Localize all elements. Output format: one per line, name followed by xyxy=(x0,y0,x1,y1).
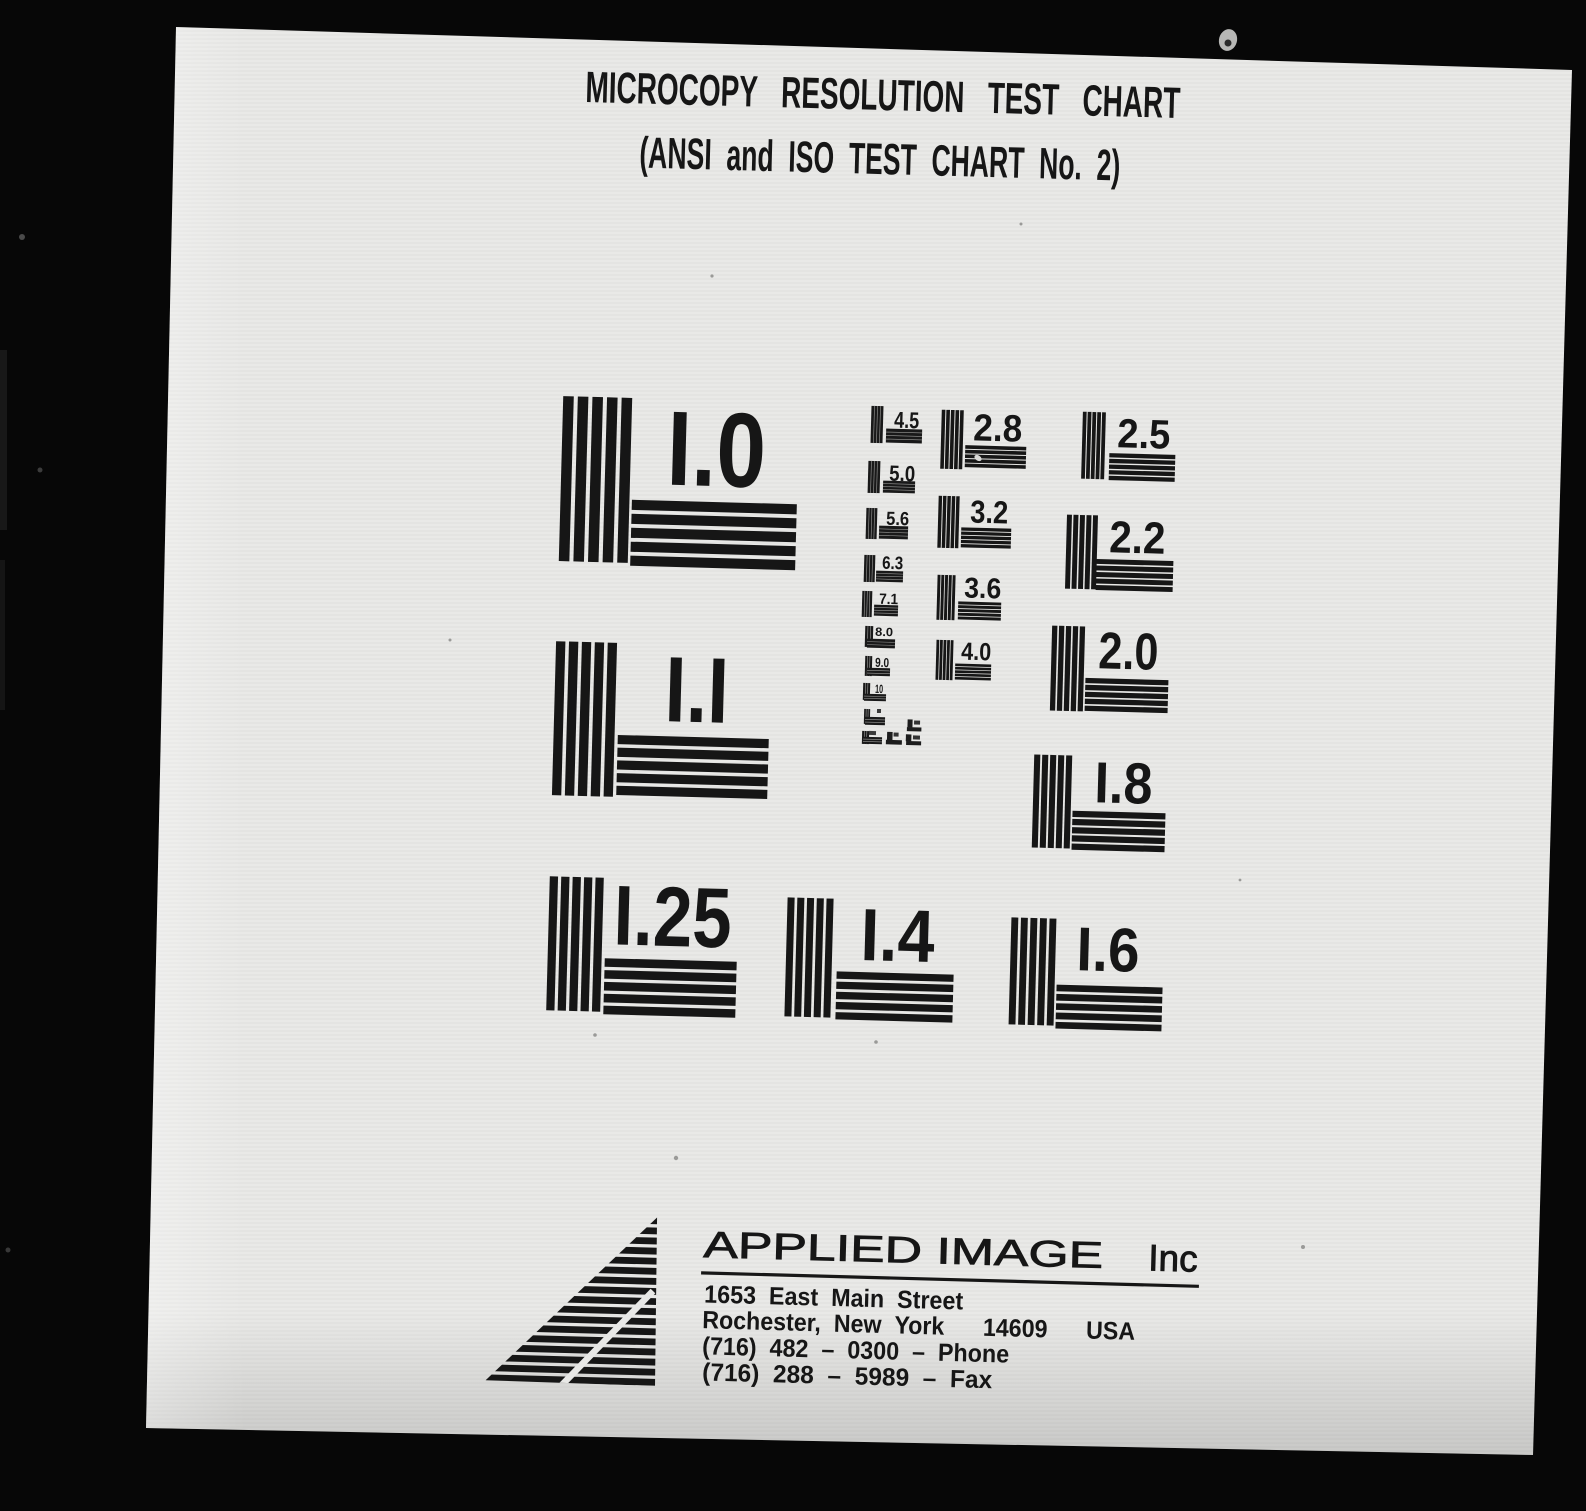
svg-text:3.6: 3.6 xyxy=(964,573,1002,606)
svg-text:I.I: I.I xyxy=(663,637,730,743)
svg-text:5.6: 5.6 xyxy=(886,509,910,531)
svg-text:2.8: 2.8 xyxy=(973,407,1023,450)
svg-text:6.3: 6.3 xyxy=(882,553,904,574)
svg-text:10: 10 xyxy=(875,682,884,696)
svg-text:2.0: 2.0 xyxy=(1098,622,1160,682)
svg-text:I.8: I.8 xyxy=(1094,750,1154,817)
svg-text:I.0: I.0 xyxy=(665,390,767,511)
svg-text:7.1: 7.1 xyxy=(879,591,898,609)
svg-text:9.0: 9.0 xyxy=(875,655,889,670)
svg-text:I.25: I.25 xyxy=(613,868,734,966)
svg-text:I.6: I.6 xyxy=(1076,915,1141,986)
svg-text:4.0: 4.0 xyxy=(961,638,992,667)
svg-text:Inc: Inc xyxy=(1148,1237,1198,1279)
svg-text:8.0: 8.0 xyxy=(875,625,894,639)
svg-text:2.2: 2.2 xyxy=(1109,511,1166,563)
svg-text:2.5: 2.5 xyxy=(1117,410,1171,457)
svg-text:3.2: 3.2 xyxy=(970,493,1009,530)
svg-text:4.5: 4.5 xyxy=(894,407,920,434)
svg-text:I.4: I.4 xyxy=(860,893,936,978)
svg-text:5.0: 5.0 xyxy=(889,461,916,487)
